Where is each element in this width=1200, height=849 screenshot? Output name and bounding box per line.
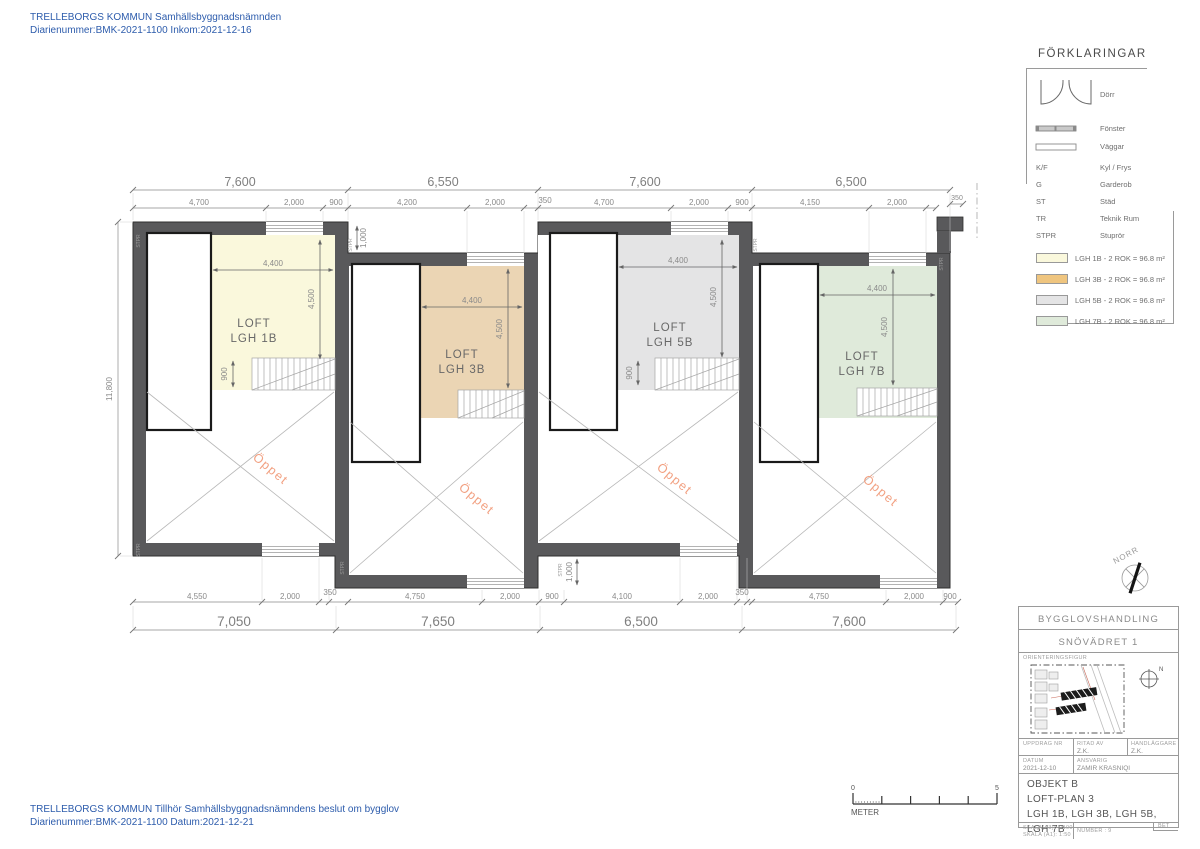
ritad-label: RITAD AV [1077,741,1104,747]
scale-zero: 0 [851,785,855,792]
stpr-label: STPR [340,561,346,575]
legend-title: FÖRKLARINGAR [1038,48,1147,60]
orientation-figure: N [1021,662,1176,736]
handlaggare-label: HANDLÄGGARE [1131,741,1176,747]
dim-sub: 900 [735,198,749,207]
unit2-label-2: LGH 3B [439,364,486,376]
unit1-label-2: LGH 1B [231,333,278,345]
legend-swatch-7b [1036,316,1068,326]
ansvarig-value: ZAMIR KRASNIQI [1077,765,1130,772]
dim-total: 6,550 [427,175,458,189]
dim-label: 1,000 [359,227,368,248]
titleblock-doctype: BYGGLOVSHANDLING [1019,614,1178,625]
dim-sub: 4,750 [405,592,426,601]
dim-total: 7,600 [224,175,255,189]
dim-sub: 2,000 [698,592,719,601]
dim-sub: 4,100 [612,592,633,601]
unit3-label-2: LGH 5B [647,337,694,349]
stpr-label: STPR [136,543,142,557]
stair-2 [458,390,524,418]
north-arrow: NORR [1095,542,1170,604]
legend-abbr-key: ST [1036,197,1046,206]
ritad-value: Z.K. [1077,748,1089,755]
legend-abbr-value: Stuprör [1100,231,1125,240]
dim-total: 6,500 [835,175,866,189]
dim-label: 4,400 [867,284,888,293]
legend-apartment-label: LGH 7B - 2 ROK = 96.8 m² [1075,317,1165,326]
ansvarig-label: ANSVARIG [1077,758,1107,764]
dim-sub: 4,700 [594,198,615,207]
dim-sub: 2,000 [887,198,908,207]
north-label: NORR [1112,545,1141,566]
dim-sub: 900 [943,592,957,601]
bet-label: BET [1158,823,1170,829]
unit2-label-1: LOFT [445,349,478,361]
dim-sub: 4,200 [397,198,418,207]
uppdrag-label: UPPDRAG NR [1023,741,1063,747]
stamp-bottom: TRELLEBORGS KOMMUN Tillhör Samhällsbyggn… [30,803,399,829]
legend-frame-bottom [1058,211,1174,324]
stair-1 [252,358,335,390]
void-room-3 [550,233,617,430]
dim-sub: 4,750 [809,592,830,601]
dim-left-total: 11,800 [105,377,114,401]
window-icon [1035,124,1079,134]
window [880,575,937,588]
legend: FÖRKLARINGAR Dörr Fönster Väggar K/F Kyl… [1018,46,1183,331]
unit1-label-1: LOFT [237,318,270,330]
dim-sub: 2,000 [485,198,506,207]
legend-abbr-key: K/F [1036,163,1048,172]
dim-sub: 350 [323,588,337,597]
wall-step-top-right2 [937,231,951,253]
dim-sub: 2,000 [284,198,305,207]
legend-abbr-value: Teknik Rum [1100,214,1139,223]
dim-sub: 350 [735,588,749,597]
window [467,253,524,266]
building-strip-2 [1056,703,1087,716]
stpr-label: STPR [558,563,564,577]
legend-apartment-label: LGH 1B - 2 ROK = 96.8 m² [1075,254,1165,263]
dim-label: 4,500 [307,288,316,309]
building-strip-1 [1061,687,1098,701]
scale-unit: METER [851,808,879,817]
scale-a3: SKALA(A3): 1:100 [1023,825,1073,831]
unit3-label-1: LOFT [653,322,686,334]
north-needle [1129,562,1142,593]
stpr-label: STPR [136,234,142,248]
dim-sub: 4,150 [800,198,821,207]
window [869,253,926,266]
void-room-1 [147,233,211,430]
stpr-label: STPR [348,238,354,252]
void-room-4 [760,264,818,462]
sheet-number: NUMBER : 9 [1077,828,1111,834]
datum-label: DATUM [1023,758,1044,764]
stpr-label: STPR [939,257,945,271]
unit4-label-1: LOFT [845,351,878,363]
dim-sub: 900 [329,198,343,207]
dim-total: 7,600 [832,614,866,629]
dim-total: 7,050 [217,614,251,629]
dim-sub: 2,000 [689,198,710,207]
dim-label: 4,400 [263,259,284,268]
dim-total: 7,600 [629,175,660,189]
window [467,575,524,588]
dim-label: 900 [625,366,634,380]
dim-sub: 350 [538,196,552,205]
legend-abbr-key: STPR [1036,231,1056,240]
object-line1: OBJEKT B [1027,777,1078,792]
dim-total: 6,500 [624,614,658,629]
dim-sub: 2,000 [500,592,521,601]
title-block: BYGGLOVSHANDLING SNÖVÄDRET 1 ORIENTERING… [1018,606,1179,828]
orientation-label: ORIENTERINGSFIGUR [1023,655,1087,661]
stamp-top-line2: Diarienummer:BMK-2021-1100 Inkom:2021-12… [30,24,281,37]
stpr-label: STPR [753,238,759,252]
dim-label: 4,500 [709,286,718,307]
legend-abbr-value: Kyl / Frys [1100,163,1131,172]
wall-icon [1035,142,1079,152]
stair-4 [857,388,937,416]
dim-label: 1,000 [565,561,574,582]
dim-step: 350 [951,195,963,202]
legend-apartment-label: LGH 5B - 2 ROK = 96.8 m² [1075,296,1165,305]
scale-five: 5 [995,785,999,792]
dim-label: 4,500 [495,318,504,339]
legend-abbr-value: Garderob [1100,180,1132,189]
object-line2: LOFT-PLAN 3 [1027,792,1094,807]
window [262,543,319,556]
dim-label: 4,500 [880,316,889,337]
stamp-top: TRELLEBORGS KOMMUN Samhällsbyggnadsnämnd… [30,11,281,37]
dim-sub: 4,550 [187,592,208,601]
legend-swatch-5b [1036,295,1068,305]
scale-a1: SKALA (A1): 1:50 [1023,832,1071,838]
legend-abbr-key: TR [1036,214,1046,223]
handlaggare-value: Z.K. [1131,748,1143,755]
legend-swatch-1b [1036,253,1068,263]
dim-label: 4,400 [668,256,689,265]
datum-value: 2021-12-10 [1023,765,1056,772]
stair-3 [655,358,739,390]
dim-label: 4,400 [462,296,483,305]
door-icon [1035,76,1097,114]
dim-sub: 900 [545,592,559,601]
dim-total: 7,650 [421,614,455,629]
stamp-bottom-line2: Diarienummer:BMK-2021-1100 Datum:2021-12… [30,816,399,829]
legend-abbr-key: G [1036,180,1042,189]
dim-sub: 2,000 [904,592,925,601]
dim-sub: 4,700 [189,198,210,207]
orientation-north-n: N [1159,667,1163,673]
window [680,543,737,556]
stamp-top-line1: TRELLEBORGS KOMMUN Samhällsbyggnadsnämnd… [30,11,281,24]
legend-wall-label: Väggar [1100,142,1124,151]
stamp-bottom-line1: TRELLEBORGS KOMMUN Tillhör Samhällsbyggn… [30,803,399,816]
dim-label: 900 [220,367,229,381]
unit4-label-2: LGH 7B [839,366,886,378]
legend-apartment-label: LGH 3B - 2 ROK = 96.8 m² [1075,275,1165,284]
titleblock-property: SNÖVÄDRET 1 [1019,637,1178,648]
window [671,222,728,235]
legend-window-label: Fönster [1100,124,1125,133]
legend-swatch-3b [1036,274,1068,284]
floor-plan: Öppet Öppet Öppet Öppet LOFT LGH 1B LOFT… [95,160,1015,665]
legend-abbr-value: Städ [1100,197,1115,206]
legend-door-label: Dörr [1100,90,1115,99]
scale-bar: 0 5 METER [845,782,1010,822]
window [266,222,323,235]
dim-sub: 2,000 [280,592,301,601]
drawing-sheet: TRELLEBORGS KOMMUN Samhällsbyggnadsnämnd… [0,0,1200,849]
